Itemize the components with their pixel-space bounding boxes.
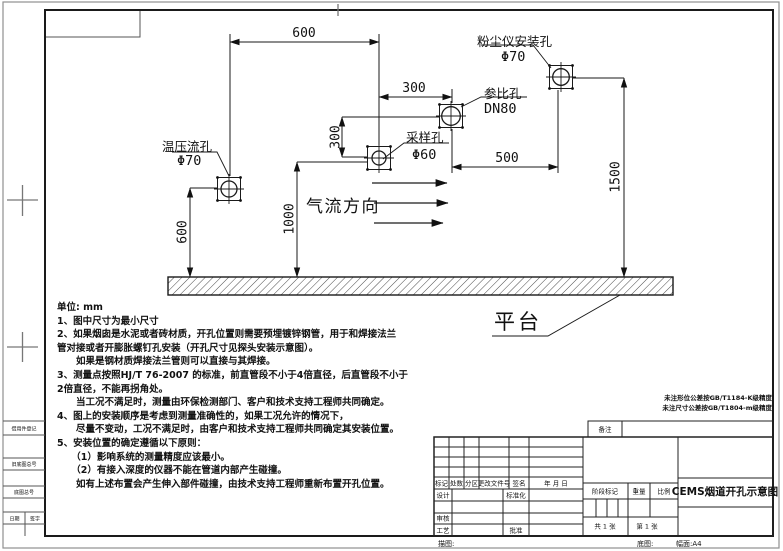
rev-header-date: 年 月 日 bbox=[544, 479, 568, 488]
note-line: 5、安装位置的确定遵循以下原则： bbox=[57, 437, 447, 451]
note-line: 2倍直径，不能再拐角处。 bbox=[57, 383, 447, 397]
label-dust-meter-hole: 粉尘仪安装孔 bbox=[477, 31, 552, 50]
weight-label: 重量 bbox=[633, 488, 647, 496]
sheet-number: 第 1 张 bbox=[636, 522, 658, 531]
drawing-title: CEMS烟道开孔示意图 bbox=[672, 485, 778, 498]
airflow-arrows bbox=[372, 183, 448, 223]
platform-label: 平台 bbox=[494, 306, 542, 336]
dim-value-1500: 1500 bbox=[609, 161, 624, 192]
margin-label-old-base: 旧底图总号 bbox=[11, 461, 36, 468]
platform-bar bbox=[168, 277, 673, 295]
trace-label: 描图: bbox=[438, 539, 454, 548]
tolerance-standard-line: 未注形位公差按GB/T1184-K级精度 bbox=[600, 393, 772, 403]
grid-reference-box bbox=[46, 11, 140, 37]
margin-label-borrowed: 借用件登记 bbox=[11, 426, 36, 433]
stage-mark-label: 阶段标记 bbox=[592, 487, 619, 496]
sheet-total: 共 1 张 bbox=[594, 522, 616, 531]
note-line: 如有上述布置会产生伸入部件碰撞，由技术支持工程师重新布置开孔位置。 bbox=[57, 478, 447, 492]
notes-block: 单位: mm 1、图中尺寸为最小尺寸 2、如果烟囱是水泥或者砖材质，开孔位置则需… bbox=[57, 301, 447, 491]
rev-header-sign: 签名 bbox=[513, 479, 526, 488]
dimension-lines bbox=[190, 34, 624, 277]
design-label: 设计 bbox=[437, 491, 451, 500]
note-line: 2、如果烟囱是水泥或者砖材质，开孔位置则需要预埋镀锌钢管，用于和焊接法兰 bbox=[57, 328, 447, 342]
label-dust-meter-size: Φ70 bbox=[501, 49, 525, 65]
margin-label-base: 底图总号 bbox=[14, 489, 34, 496]
note-line: 如果是钢材质焊接法兰管则可以直接与其焊接。 bbox=[57, 355, 447, 369]
tolerance-standards: 未注形位公差按GB/T1184-K级精度 未注尺寸公差按GB/T1804-m级精… bbox=[600, 393, 772, 413]
cad-drawing-sheet: 600 300 300 500 1500 1000 600 bbox=[0, 0, 783, 551]
note-line: 4、图上的安装顺序是考虑到测量准确性的，如果工况允许的情况下， bbox=[57, 410, 447, 424]
note-line: 当工况不满足时，测量由环保检测部门、客户和技术支持工程师共同确定。 bbox=[57, 396, 447, 410]
label-sampling-hole: 采样孔 bbox=[406, 127, 444, 146]
hole-dust-meter bbox=[546, 62, 576, 92]
label-sampling-size: Φ60 bbox=[412, 147, 436, 163]
dim-value-600-top: 600 bbox=[292, 26, 315, 41]
note-line: 管对接或者开膨胀螺钉孔安装（开孔尺寸见探头安装示意图）。 bbox=[57, 342, 447, 356]
rev-header-count: 处数 bbox=[450, 479, 464, 488]
label-reference-hole: 参比孔 bbox=[484, 83, 522, 102]
approve-label: 批准 bbox=[510, 526, 524, 535]
dim-value-300-v: 300 bbox=[329, 125, 344, 148]
hole-temp-pressure-flow bbox=[214, 174, 244, 204]
process-label: 工艺 bbox=[437, 527, 451, 535]
remark-label: 备注 bbox=[599, 425, 613, 434]
note-line: 尽量不变动，工况不满足时，由客户和技术支持工程师共同确定其安装位置。 bbox=[57, 423, 447, 437]
title-block-grid bbox=[434, 421, 773, 536]
base-label: 底图: bbox=[637, 539, 653, 548]
label-reference-size: DN80 bbox=[484, 101, 517, 117]
note-line: （1）影响系统的测量精度应该最小。 bbox=[57, 451, 447, 465]
label-temp-pressure-flow-size: Φ70 bbox=[177, 153, 201, 169]
dimension-600-left bbox=[190, 188, 217, 277]
airflow-direction-label: 气流方向 bbox=[306, 192, 380, 217]
dim-value-500: 500 bbox=[495, 151, 518, 166]
dim-value-300-h: 300 bbox=[402, 81, 425, 96]
dimension-600-top bbox=[230, 34, 379, 176]
rev-header-zone: 分区 bbox=[465, 479, 479, 488]
dim-value-600-left: 600 bbox=[176, 220, 191, 243]
note-line: （2）有接入深度的仪器不能在管道内部产生碰撞。 bbox=[57, 464, 447, 478]
sheet-format-label: 幅面:A4 bbox=[676, 539, 702, 548]
dimension-1000 bbox=[297, 162, 367, 277]
dim-value-1000: 1000 bbox=[283, 203, 298, 234]
tolerance-standard-line: 未注尺寸公差按GB/T1804-m级精度 bbox=[600, 403, 772, 413]
review-label: 审核 bbox=[437, 514, 451, 523]
note-line: 单位: mm bbox=[57, 301, 447, 315]
scale-label: 比例 bbox=[658, 487, 671, 496]
hole-sampling bbox=[364, 143, 394, 173]
margin-date-label: 日期 bbox=[9, 517, 19, 523]
note-line: 1、图中尺寸为最小尺寸 bbox=[57, 315, 447, 329]
margin-sign-label: 签字 bbox=[30, 516, 40, 523]
rev-header-docno: 更改文件号 bbox=[478, 479, 511, 488]
note-line: 3、测量点按照HJ/T 76-2007 的标准，前直管段不小于4倍直径，后直管段… bbox=[57, 369, 447, 383]
standardization-label: 标准化 bbox=[506, 491, 526, 500]
